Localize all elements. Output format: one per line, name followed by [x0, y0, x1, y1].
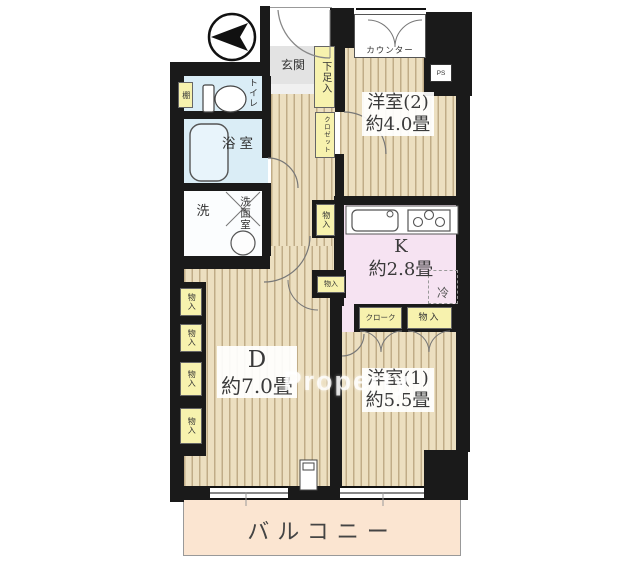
storage-label: 物入	[418, 313, 440, 322]
storage-kitchen-side: 物入	[407, 307, 452, 329]
laundry-label: 洗	[186, 200, 220, 219]
watermark: Property	[222, 366, 472, 397]
wall-segment	[424, 450, 468, 500]
watermark-text: Property	[283, 366, 410, 396]
western2-label: 洋室(2) 約4.0畳	[340, 92, 456, 136]
pipe-space-label: PS	[437, 70, 446, 77]
balcony-window-dining	[210, 486, 288, 500]
floor-plan: カウンター 下足入 クロゼット 棚 物入 物入 クローク 物入 物入 物入 物入…	[0, 0, 640, 569]
wall-segment	[262, 191, 271, 256]
toilet-label: トイレ	[247, 78, 260, 116]
wall-segment	[170, 256, 270, 269]
wall-segment	[456, 94, 470, 452]
storage-left-1: 物入	[180, 288, 202, 316]
counter-label: カウンター	[366, 45, 414, 57]
counter-box: カウンター	[354, 14, 426, 58]
label: トイレ	[248, 78, 258, 108]
room-name: バルコニー	[247, 520, 397, 545]
cloak-label: クローク	[366, 314, 396, 322]
entrance-label: 玄関	[272, 56, 314, 73]
label: 洗	[196, 203, 209, 218]
shoe-cabinet-label: 下足入	[319, 61, 330, 94]
wall-segment	[288, 486, 340, 500]
pipe-space: PS	[430, 64, 452, 82]
hall-closet-label: クロゼット	[322, 116, 329, 154]
wall-segment	[424, 12, 472, 96]
wall-segment	[170, 62, 270, 76]
hall-closet: クロゼット	[315, 112, 335, 158]
storage-label: 物入	[187, 417, 195, 435]
balcony-label: バルコニー	[183, 514, 461, 546]
washroom-label: 洗面室	[238, 196, 253, 252]
room-name: K	[394, 236, 407, 257]
wall-segment	[335, 196, 458, 205]
balcony-window-western1	[340, 486, 424, 500]
entrance-step	[270, 84, 314, 94]
cloak: クローク	[359, 307, 402, 329]
wall-segment	[330, 8, 354, 48]
storage-label: 物入	[324, 281, 338, 288]
refrigerator-label: 冷	[437, 284, 449, 301]
shelf: 棚	[178, 82, 193, 108]
storage-label: 物入	[321, 211, 329, 229]
storage-left-4: 物入	[180, 408, 202, 444]
room-name: 洋室(2)	[367, 92, 429, 113]
shoe-cabinet: 下足入	[314, 46, 335, 108]
shelf-label: 棚	[181, 91, 189, 100]
bath-label: 浴室	[222, 132, 268, 152]
wall-segment	[260, 6, 270, 76]
storage-label: 物入	[187, 293, 195, 311]
storage-label: 物入	[187, 329, 195, 347]
compass-icon	[209, 14, 255, 60]
kitchen-label: K 約2.8畳	[344, 236, 458, 281]
kitchen-door-gap	[342, 304, 354, 332]
room-size: 約2.8畳	[369, 259, 434, 280]
room-size: 約4.0畳	[366, 114, 431, 135]
wall-segment	[184, 486, 210, 500]
storage-corridor-lower: 物入	[317, 276, 345, 293]
wall-segment	[184, 183, 271, 191]
label: 浴室	[222, 136, 257, 151]
label: 玄関	[281, 58, 305, 72]
storage-corridor-upper: 物入	[316, 204, 335, 236]
entrance-recess	[270, 7, 332, 46]
label: 洗面室	[239, 196, 251, 231]
